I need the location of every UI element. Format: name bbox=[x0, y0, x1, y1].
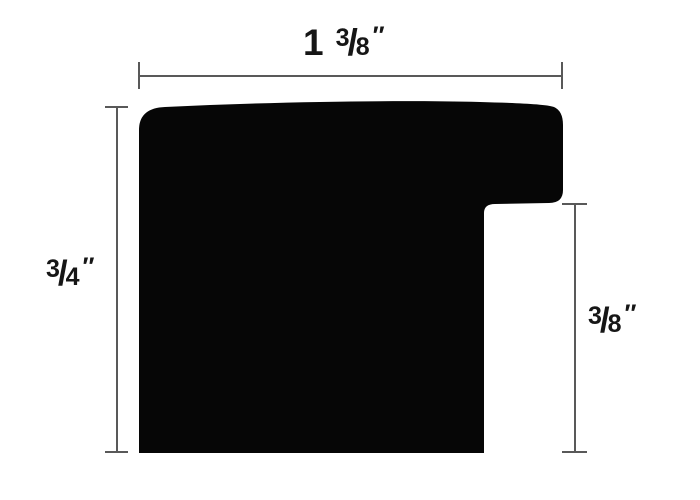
width-fraction-denominator: 8 bbox=[356, 35, 370, 60]
right-height-denominator: 8 bbox=[608, 312, 622, 337]
left-height-dimension-line bbox=[116, 106, 118, 453]
left-height-tick-top bbox=[105, 106, 128, 108]
width-inch-mark: ″ bbox=[373, 24, 385, 49]
width-dimension-label: 13/8″ bbox=[303, 24, 385, 61]
width-dimension-line bbox=[139, 75, 562, 77]
diagram-canvas: 13/8″ 3/4″ 3/8″ bbox=[0, 0, 700, 500]
width-dimension-tick-right bbox=[561, 62, 563, 89]
width-whole-number: 1 bbox=[303, 24, 324, 61]
left-height-dimension-label: 3/4″ bbox=[46, 256, 95, 291]
profile-shape-path bbox=[139, 101, 563, 453]
right-height-dimension-line bbox=[574, 203, 576, 453]
right-height-dimension-label: 3/8″ bbox=[588, 303, 637, 338]
right-height-tick-top bbox=[562, 203, 587, 205]
right-height-tick-bottom bbox=[562, 451, 587, 453]
right-height-inch-mark: ″ bbox=[625, 302, 637, 327]
width-dimension-tick-left bbox=[138, 62, 140, 89]
left-height-inch-mark: ″ bbox=[83, 255, 95, 280]
left-height-tick-bottom bbox=[105, 451, 128, 453]
left-height-denominator: 4 bbox=[66, 265, 80, 290]
